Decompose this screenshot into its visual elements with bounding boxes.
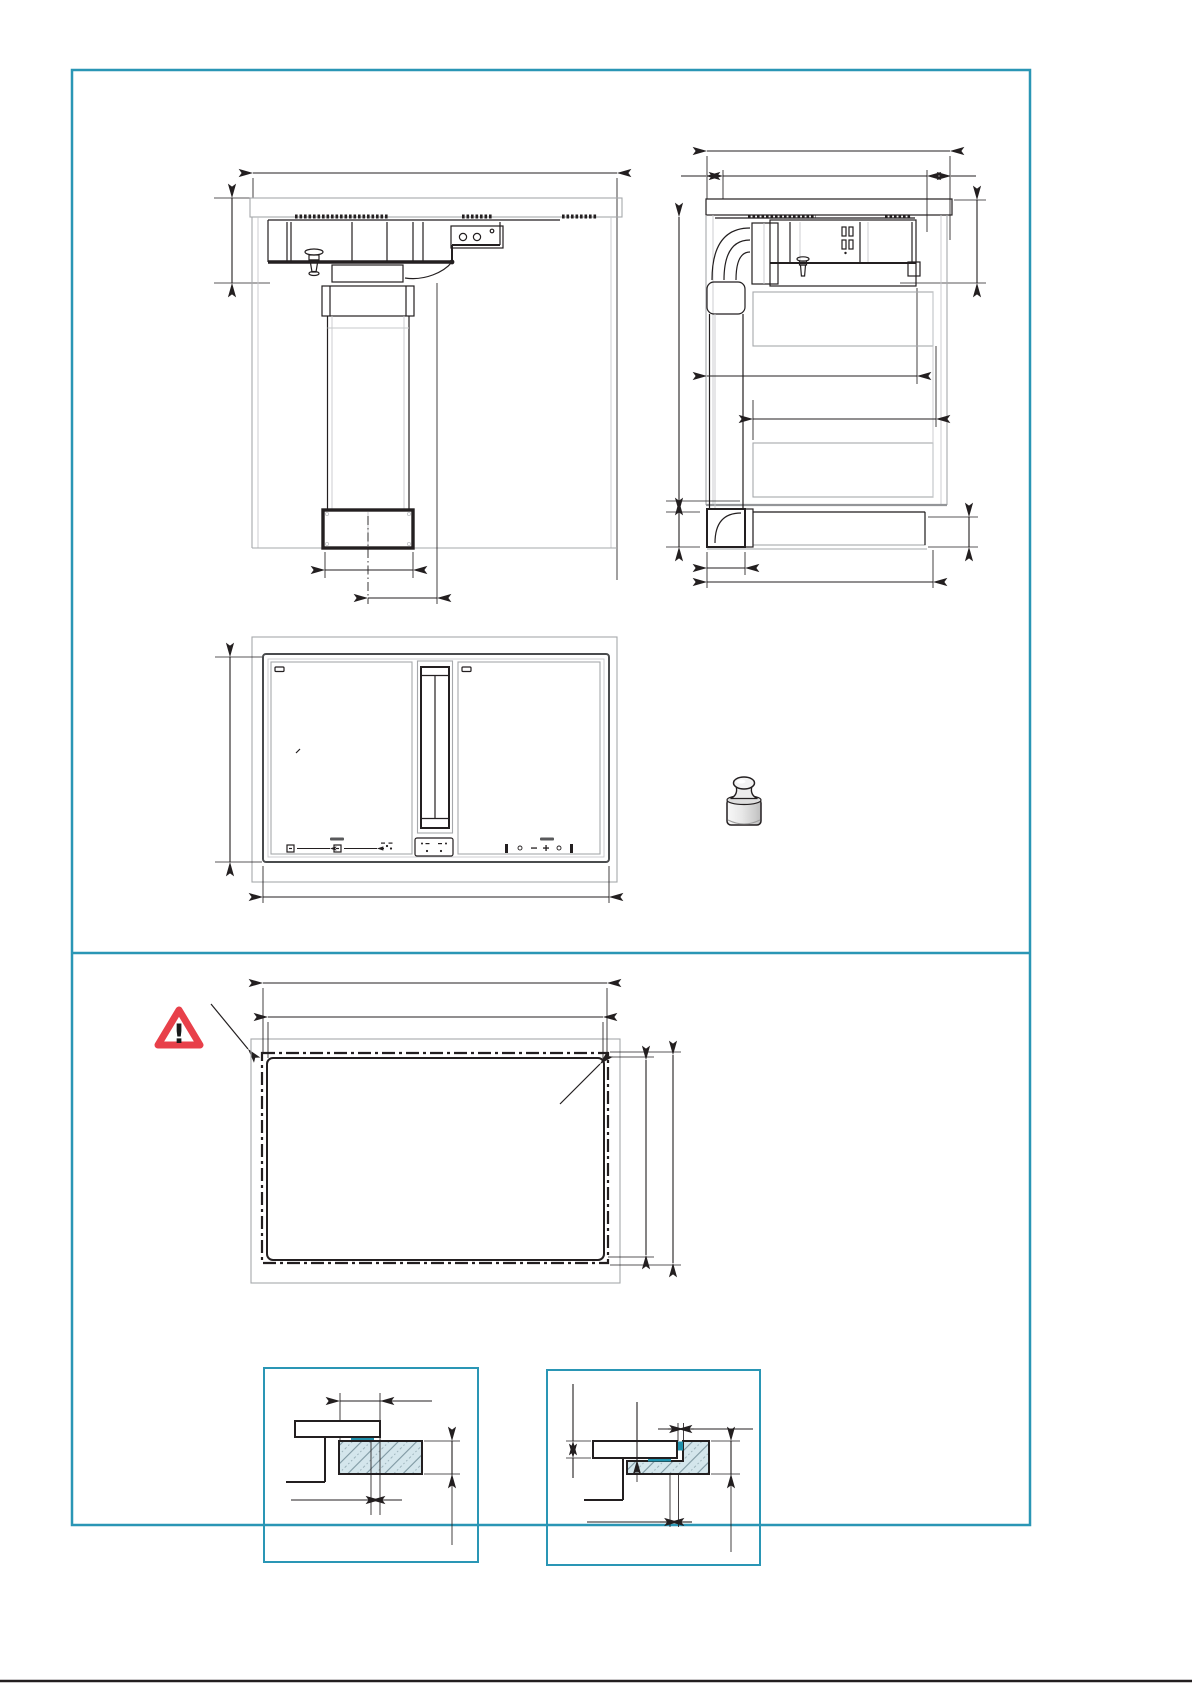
scribe-line bbox=[262, 1053, 608, 1263]
drawing-sheet: ! bbox=[0, 0, 1192, 1685]
brand-mark-left bbox=[330, 838, 344, 841]
cable-loop bbox=[405, 262, 452, 279]
fig-detail-surface-mount bbox=[264, 1368, 478, 1562]
page: ! bbox=[0, 0, 1192, 1685]
cutout-corner-leader-arrow bbox=[560, 1064, 600, 1104]
extractor-control-panel bbox=[415, 838, 453, 856]
fig-worktop-cutout-plan bbox=[251, 983, 681, 1283]
warning-triangle-icon: ! bbox=[158, 1010, 200, 1050]
fig-hob-front-section bbox=[214, 173, 622, 604]
calibration-weight-icon bbox=[727, 777, 761, 825]
fig-hob-plan-view bbox=[215, 637, 617, 903]
worktop-section bbox=[339, 1441, 422, 1474]
hob-glass-section bbox=[593, 1441, 677, 1458]
left-zone-controls bbox=[287, 843, 393, 853]
cutout-line bbox=[267, 1058, 604, 1260]
drain-valve-side bbox=[797, 257, 809, 276]
extractor-grille bbox=[418, 661, 453, 833]
fig-cabinet-side-section bbox=[666, 151, 986, 588]
hob-edge-section bbox=[295, 1421, 380, 1437]
brand-mark-right bbox=[540, 838, 554, 841]
seal-joint bbox=[678, 1442, 684, 1451]
fig-detail-flush-mount bbox=[547, 1370, 760, 1565]
warning-leader-arrow bbox=[211, 1004, 248, 1049]
warning-exclamation: ! bbox=[173, 1019, 185, 1050]
right-zone-controls bbox=[505, 844, 573, 853]
sheet-frame bbox=[72, 70, 1030, 1525]
